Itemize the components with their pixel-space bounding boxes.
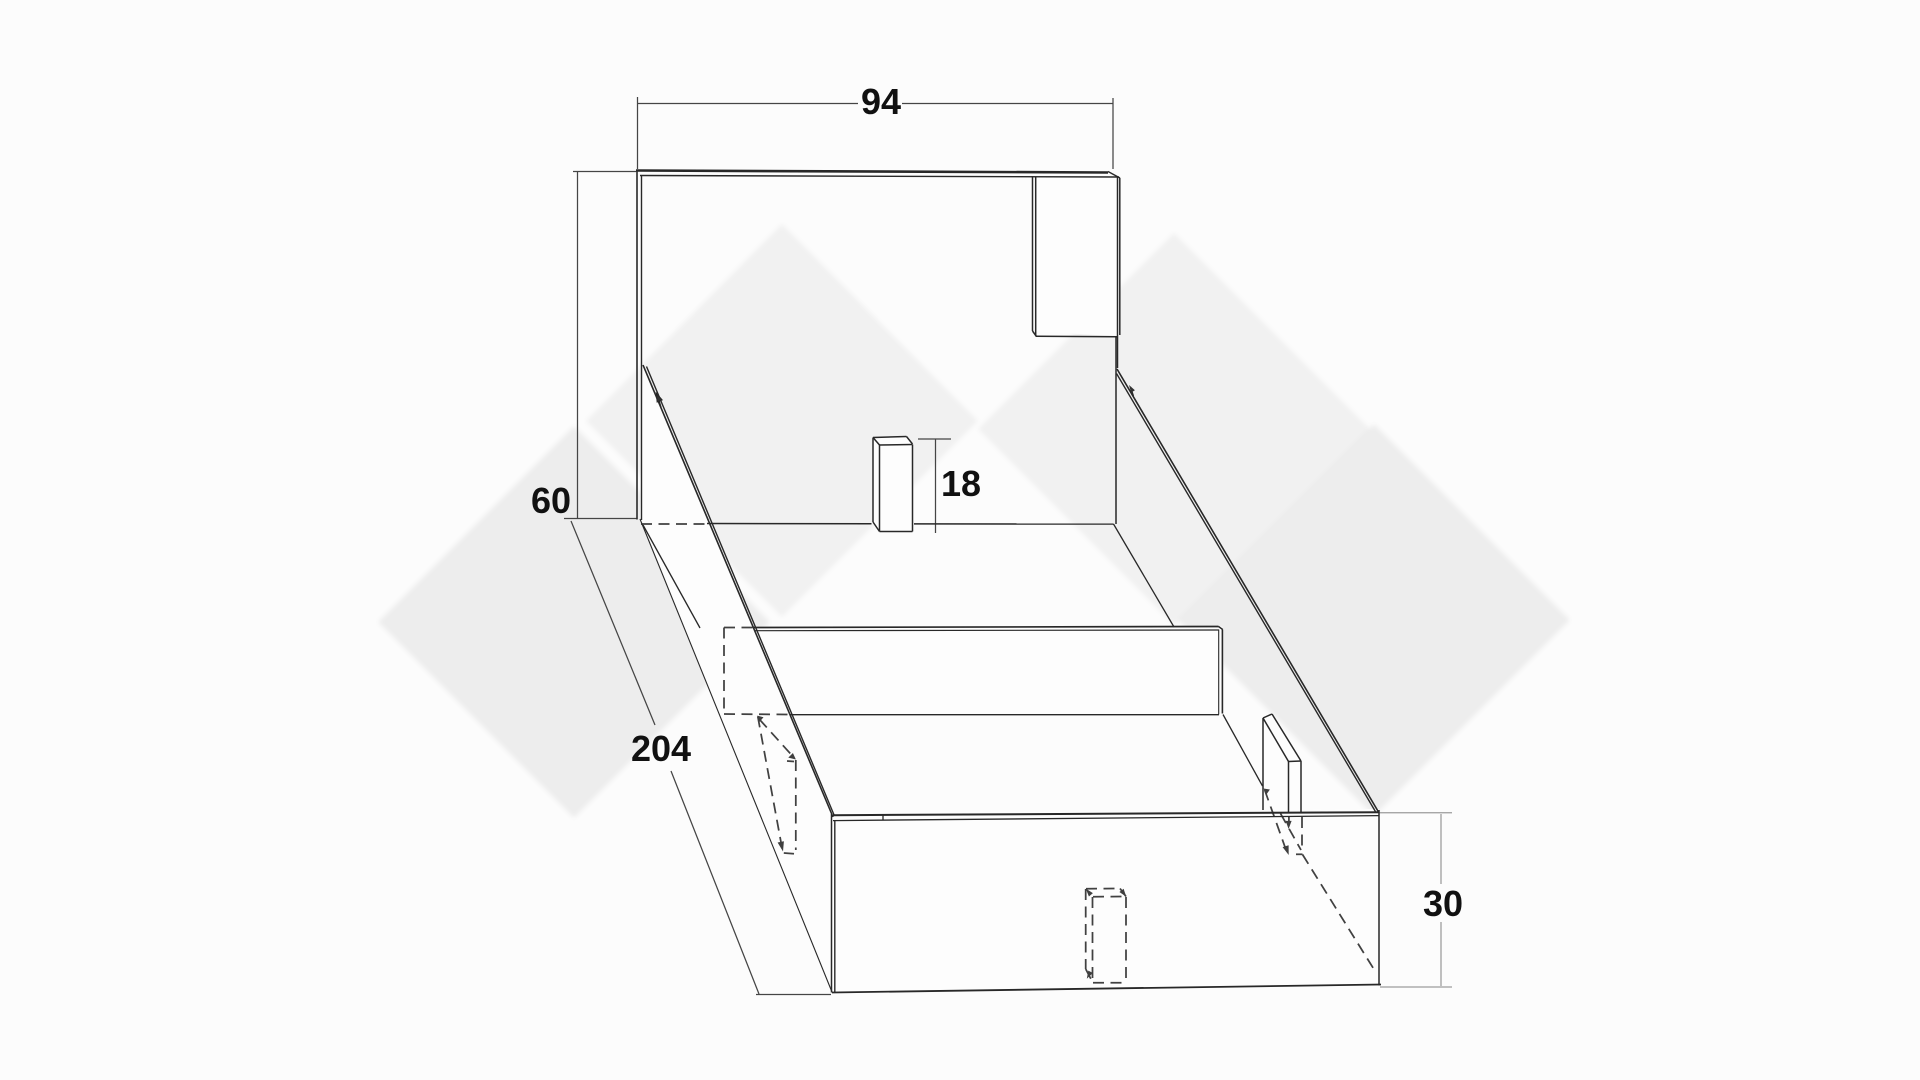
- svg-text:60: 60: [531, 480, 571, 521]
- svg-text:204: 204: [631, 728, 691, 769]
- svg-text:30: 30: [1423, 883, 1463, 924]
- svg-text:18: 18: [941, 463, 981, 504]
- svg-text:94: 94: [861, 81, 901, 122]
